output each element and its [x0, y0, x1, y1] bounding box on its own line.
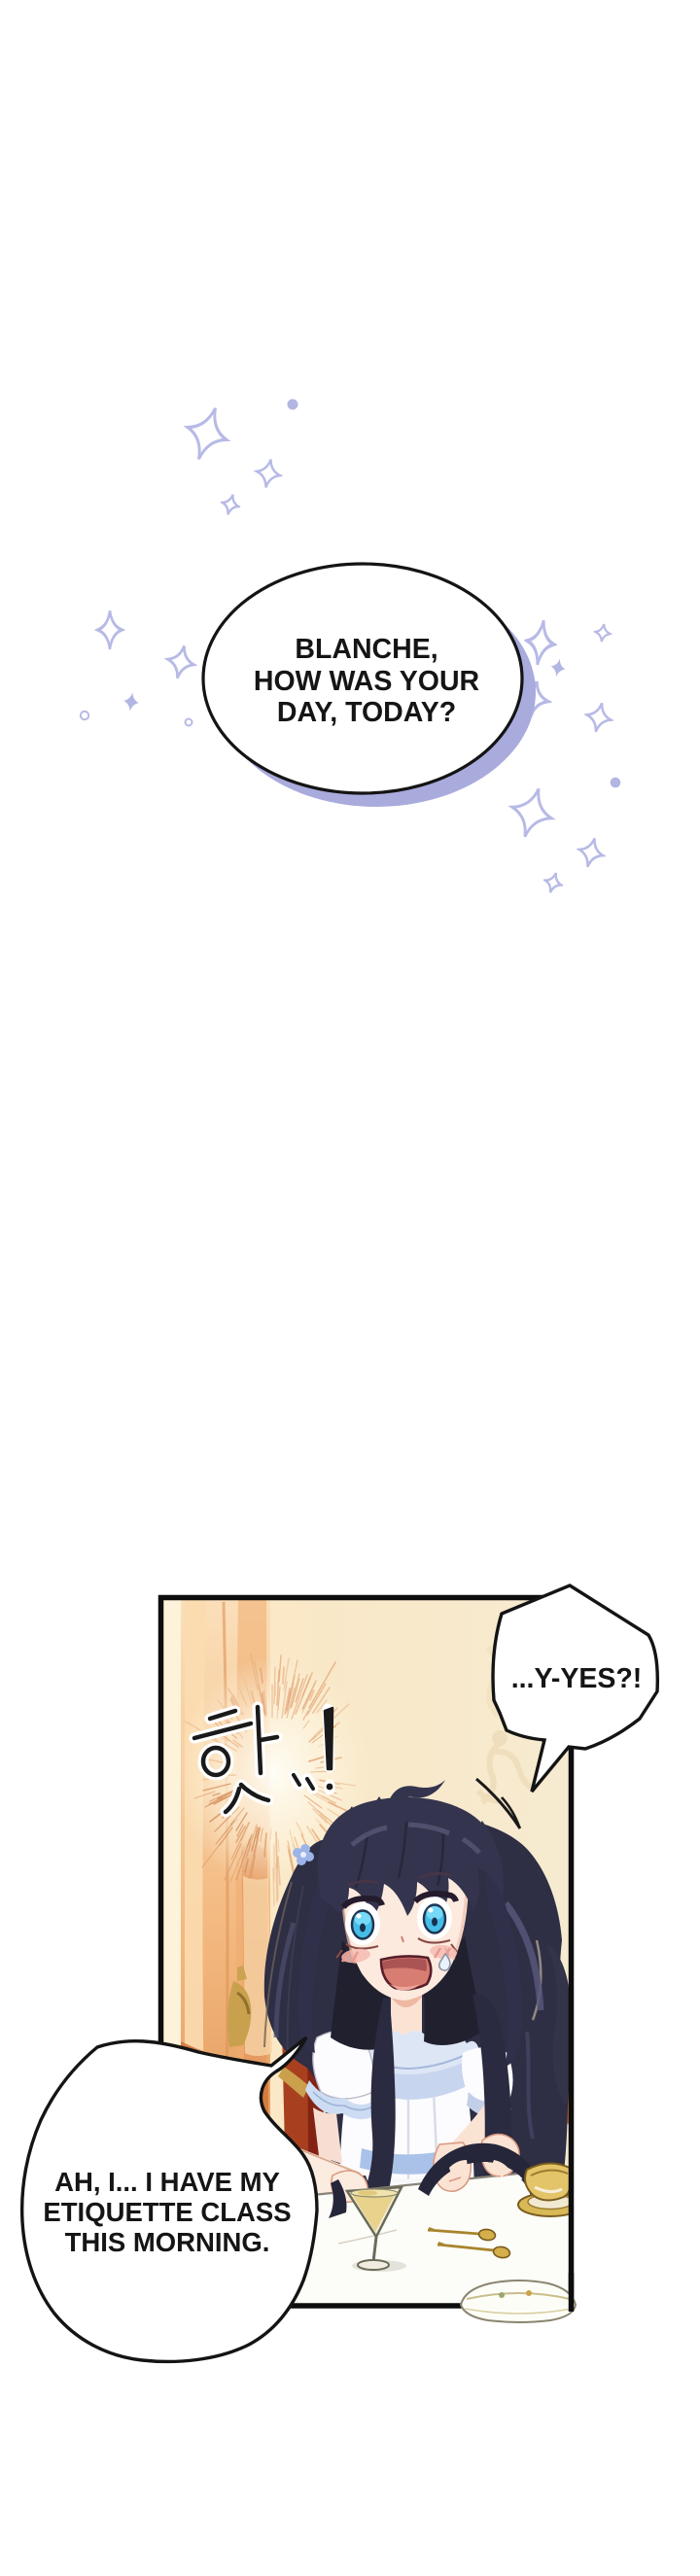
svg-text:ETIQUETTE CLASS: ETIQUETTE CLASS [43, 2197, 291, 2227]
svg-text:HOW WAS YOUR: HOW WAS YOUR [254, 666, 479, 697]
svg-text:AH, I... I HAVE MY: AH, I... I HAVE MY [54, 2167, 280, 2197]
svg-text:DAY, TODAY?: DAY, TODAY? [277, 697, 456, 728]
svg-text:THIS MORNING.: THIS MORNING. [65, 2227, 270, 2257]
svg-text:BLANCHE,: BLANCHE, [295, 634, 437, 665]
svg-text:...Y-YES?!: ...Y-YES?! [511, 1663, 643, 1694]
